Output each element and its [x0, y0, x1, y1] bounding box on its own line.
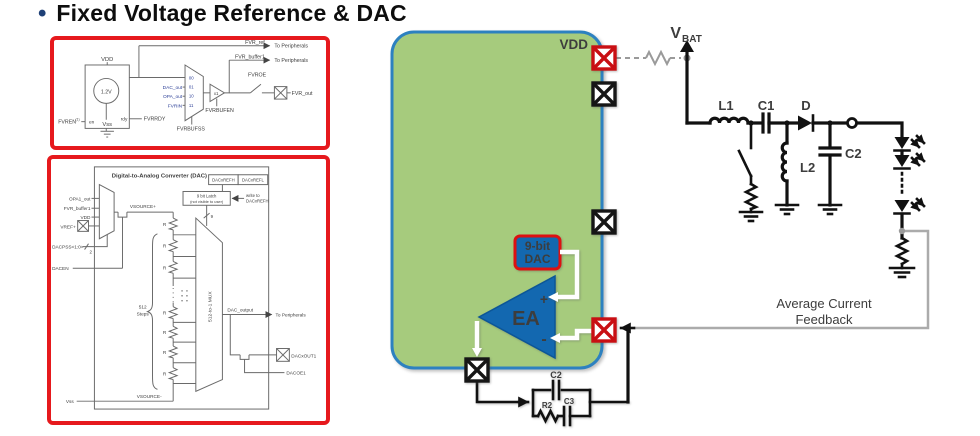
- dac-block: 9-bit DAC: [515, 236, 560, 269]
- output-terminal: [848, 119, 857, 128]
- comp-c2-label: C2: [550, 370, 562, 380]
- ea-output-pin: [466, 359, 488, 381]
- vbat-source: V BAT: [670, 25, 701, 123]
- feedback-pin: [593, 319, 615, 341]
- pin-2: [593, 83, 615, 105]
- ground-icon: [890, 268, 914, 277]
- led-string: [890, 136, 924, 277]
- comp-r2-label: R2: [542, 401, 553, 410]
- dac-block-line2: DAC: [525, 252, 551, 266]
- feedback-tap-node: [899, 228, 905, 234]
- c2-branch: C2: [819, 120, 862, 214]
- l1-label: L1: [718, 98, 733, 113]
- vbat-label: V: [670, 25, 681, 42]
- l2-branch: L2: [776, 123, 815, 214]
- mcu-vdd-label: VDD: [559, 37, 588, 52]
- led-3: [895, 199, 925, 214]
- ea-plus-input: +: [540, 291, 548, 307]
- application-circuit: VDD V BAT L1 C1: [0, 0, 980, 436]
- l2-label: L2: [800, 160, 815, 175]
- comp-r2-resistor: [538, 411, 558, 421]
- ea-label: EA: [512, 308, 540, 330]
- comp-c2-capacitor: [553, 381, 559, 399]
- c1-label: C1: [758, 98, 775, 113]
- feedback-path: Average Current Feedback: [621, 231, 928, 402]
- switch-branch: [739, 123, 762, 221]
- l1-inductor: [710, 118, 748, 123]
- ground-icon: [740, 212, 762, 221]
- led-1: [895, 136, 925, 151]
- compensation-network: C2 R2 C3: [477, 370, 628, 425]
- boost-power-stage: L1 C1: [687, 98, 902, 221]
- sense-resistor: [746, 184, 756, 209]
- led-resistor: [897, 238, 907, 264]
- comp-c3-label: C3: [564, 397, 575, 406]
- ea-minus-input: -: [541, 331, 546, 348]
- vbat-subscript: BAT: [682, 34, 702, 45]
- d-diode: D: [798, 98, 830, 131]
- feedback-label-line2: Feedback: [795, 312, 853, 327]
- vdd-pin: [593, 47, 615, 69]
- d-label: D: [801, 98, 810, 113]
- vdd-supply-link: [616, 52, 691, 64]
- led-2: [895, 154, 925, 169]
- pin-3: [593, 211, 615, 233]
- feedback-label-line1: Average Current: [776, 296, 872, 311]
- l2-inductor: [782, 143, 787, 181]
- dac-block-line1: 9-bit: [525, 239, 550, 253]
- slide: • Fixed Voltage Reference & DAC VDD 1.2V…: [0, 0, 980, 436]
- c2-label: C2: [845, 146, 862, 161]
